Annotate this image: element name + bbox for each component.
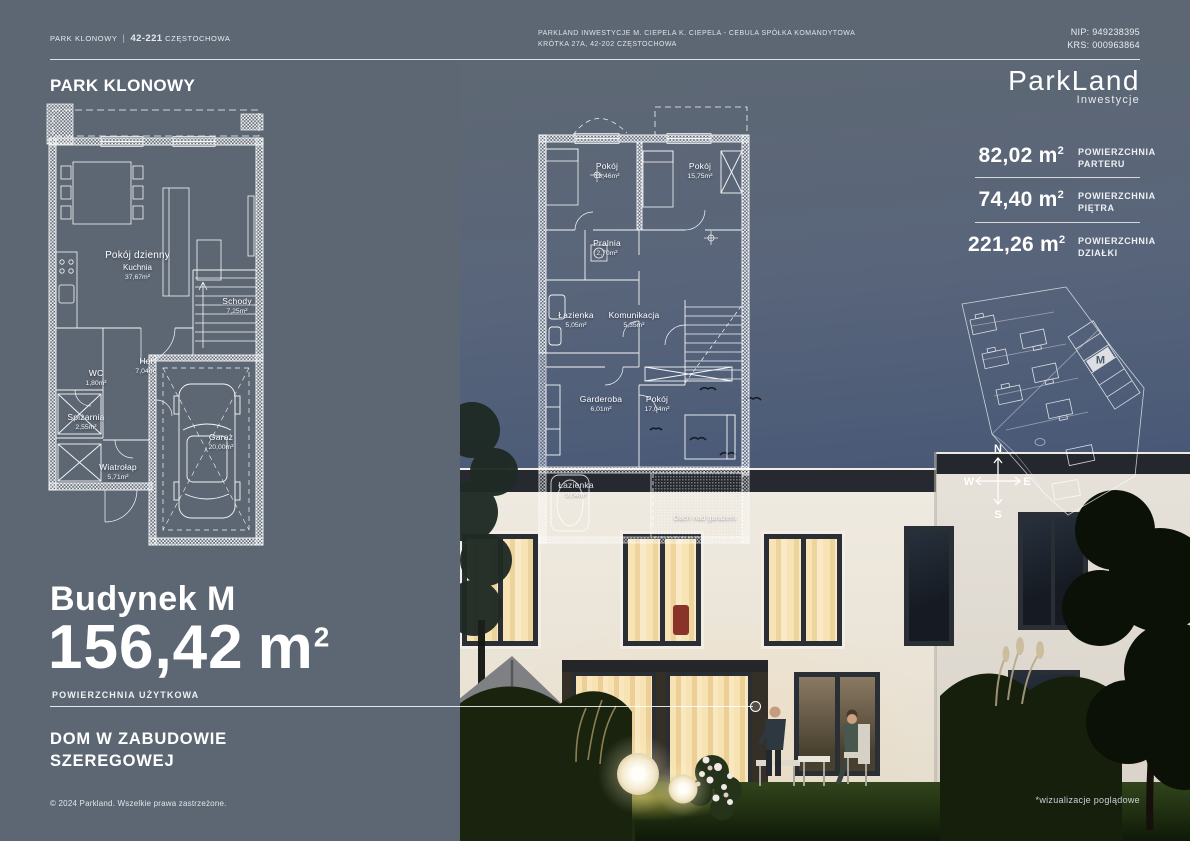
room-label-wc: WC 1,80m² [70,368,122,388]
stat-ground-label: POWIERZCHNIAPARTERU [1078,147,1156,170]
stat-unit: m [1039,144,1058,167]
highlighted-unit-label: M [1096,354,1105,366]
logo-wordmark: ParkLand [1008,66,1140,96]
brochure-page: PARK KLONOWY|42-221 CZĘSTOCHOWA PARKLAND… [0,0,1190,841]
room-label-laundry: Pralnia 2,70m² [573,238,641,258]
header-rule [50,59,1140,60]
compass-west: W [964,476,975,488]
sphere-lamps [598,734,711,817]
header-project: PARK KLONOWY [50,34,118,43]
stat-value: 82,02 [979,144,1033,167]
visualization-disclaimer: *wizualizacje poglądowe [1036,795,1140,805]
page-title: PARK KLONOWY [50,76,195,96]
room-label-hall: Hol 7,04m² [115,356,177,376]
header-address-left: PARK KLONOWY|42-221 CZĘSTOCHOWA [50,33,230,44]
stat-floor-area: 74,40m2 [968,188,1064,212]
townhouse-row: M [1068,321,1140,409]
room-label-bathroom2: Łazienka 9,04m² [542,480,610,500]
person-man [770,707,781,718]
company-address-line: KRÓTKA 27A, 42-202 CZĘSTOCHOWA [538,39,855,50]
room-label-garage: Garaż 20,00m² [185,432,257,452]
leader-line-dot [750,701,761,712]
kitchen-icon [56,252,77,328]
ground-floor-plan: Pokój dzienny Kuchnia 37,67m² Schody 7,2… [45,100,270,550]
header-divider: | [123,33,126,43]
company-name-line: PARKLAND INWESTYCJE M. CIEPELA K. CIEPEL… [538,28,855,39]
stat-separator [975,222,1140,223]
room-label-bedroom3: Pokój 17,04m² [623,394,691,414]
copyright-notice: © 2024 Parkland. Wszelkie prawa zastrzeż… [50,799,227,808]
brand-logo: ParkLand Inwestycje [1008,66,1140,106]
room-label-pantry: Spiżarnia 2,55m² [50,412,122,432]
room-label-bedroom2: Pokój 15,75m² [666,161,734,181]
room-label-stairs: Schody 7,25m² [205,296,269,316]
usable-area-value: 156,42m2 [48,612,330,683]
nip-number: NIP: 949238395 [1067,26,1140,39]
krs-number: KRS: 000963864 [1067,39,1140,52]
stat-ground-area: 82,02m2 [968,144,1064,168]
stat-unit: m [1040,233,1059,256]
stat-value: 74,40 [979,188,1033,211]
house-type: DOM W ZABUDOWIE SZEREGOWEJ [50,728,227,772]
header-zip: 42-221 [130,33,162,44]
header-registry: NIP: 949238395 KRS: 000963864 [1067,26,1140,52]
header-city: CZĘSTOCHOWA [165,34,230,43]
compass-east: E [1023,476,1030,488]
stat-separator [975,177,1140,178]
room-label-living: Pokój dzienny Kuchnia 37,67m² [85,250,190,282]
room-label-vestibule: Wiatrołap 5,71m² [82,462,154,482]
compass-icon: N S W E [962,442,1034,520]
room-label-corridor: Komunikacja 5,35m² [600,310,668,330]
usable-area-label: POWIERZCHNIA UŻYTKOWA [52,690,199,700]
stat-plot-area: 221,26m2 [968,233,1064,257]
room-label-bedroom1: Pokój 13,46m² [573,161,641,181]
terrace-people [756,707,870,787]
header-company: PARKLAND INWESTYCJE M. CIEPELA K. CIEPEL… [538,28,855,50]
stat-value: 221,26 [968,233,1034,256]
leader-line [50,706,753,707]
compass-south: S [994,509,1001,520]
room-label-garage-roof: Dach nad garażem [660,515,750,524]
first-floor-plan: Pokój 13,46m² Pokój 15,75m² Pralnia 2,70… [535,95,757,550]
compass-north: N [994,443,1002,455]
stat-floor-label: POWIERZCHNIAPIĘTRA [1078,191,1156,214]
ground-floor-plan-drawing [45,100,270,550]
person-woman [847,714,857,724]
stat-unit: m [1039,188,1058,211]
dining-table-icon [61,162,143,224]
stat-plot-label: POWIERZCHNIADZIAŁKI [1078,236,1156,259]
